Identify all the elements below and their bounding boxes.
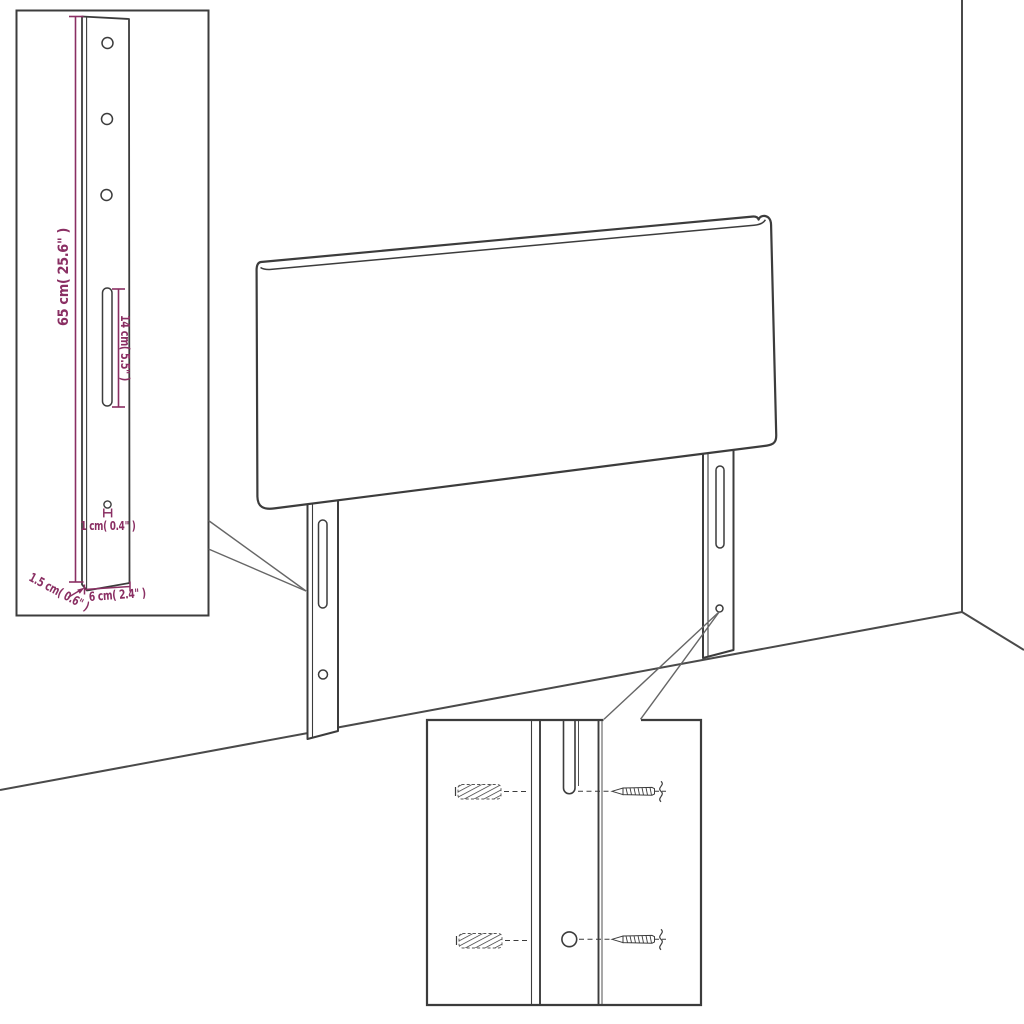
bracket-hole-top <box>102 38 113 49</box>
right-leg-screw-hole <box>716 605 723 612</box>
headboard-panel-outline <box>257 216 777 509</box>
left-leg-slot <box>319 520 328 608</box>
diagram-canvas: 65 cm( 25.6" ) 14 cm( 5.5" ) 1 cm( 0.4" … <box>0 0 1024 1024</box>
mounting-detail-inset <box>427 720 701 1005</box>
headboard-panel <box>257 216 777 509</box>
left-leg-screw-hole <box>319 670 328 679</box>
bracket-slot <box>103 288 113 406</box>
wall-floor-line-right <box>962 612 1024 650</box>
dimension-1cm-label: 1 cm( 0.4" ) <box>81 518 136 533</box>
bracket-inset-callout-lines <box>209 521 307 592</box>
wall-plug-icon <box>456 785 502 800</box>
wall-plug-icon <box>457 934 503 949</box>
dimension-65cm-label: 65 cm( 25.6" ) <box>56 228 72 326</box>
left-mounting-leg <box>308 492 339 739</box>
right-leg-slot <box>716 466 724 548</box>
bracket-hole-bottom <box>101 190 112 201</box>
bracket-hole-middle <box>102 114 113 125</box>
strip-hole-closeup <box>562 932 577 947</box>
bracket-small-hole <box>104 501 111 508</box>
mounting-inset-callout-lines <box>604 612 720 720</box>
dimension-14cm-label: 14 cm( 5.5" ) <box>118 315 133 381</box>
bracket-detail-inset: 65 cm( 25.6" ) 14 cm( 5.5" ) 1 cm( 0.4" … <box>17 11 209 616</box>
callout-leader-line <box>641 612 720 720</box>
right-mounting-leg <box>703 437 734 658</box>
headboard-dimension-diagram: 65 cm( 25.6" ) 14 cm( 5.5" ) 1 cm( 0.4" … <box>0 0 1024 1024</box>
callout-leader-line <box>604 612 720 720</box>
